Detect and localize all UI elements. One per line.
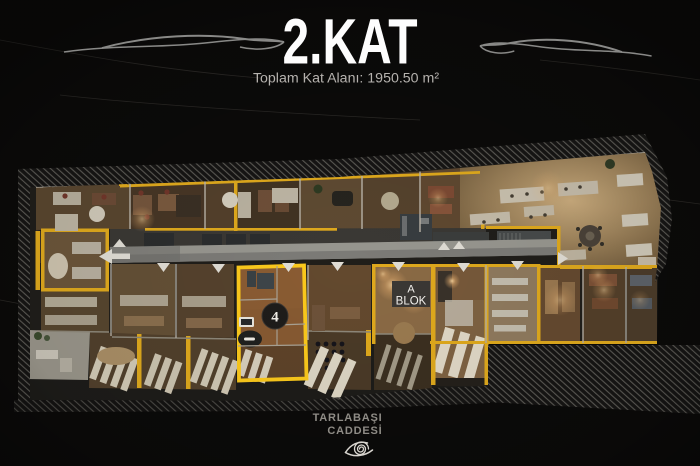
- svg-text:TARLABAŞI: TARLABAŞI: [313, 412, 383, 424]
- svg-text:2.KAT: 2.KAT: [283, 6, 418, 78]
- svg-text:Toplam Kat Alanı: 1950.50 m²: Toplam Kat Alanı: 1950.50 m²: [253, 71, 439, 87]
- svg-text:CADDESİ: CADDESİ: [327, 424, 382, 437]
